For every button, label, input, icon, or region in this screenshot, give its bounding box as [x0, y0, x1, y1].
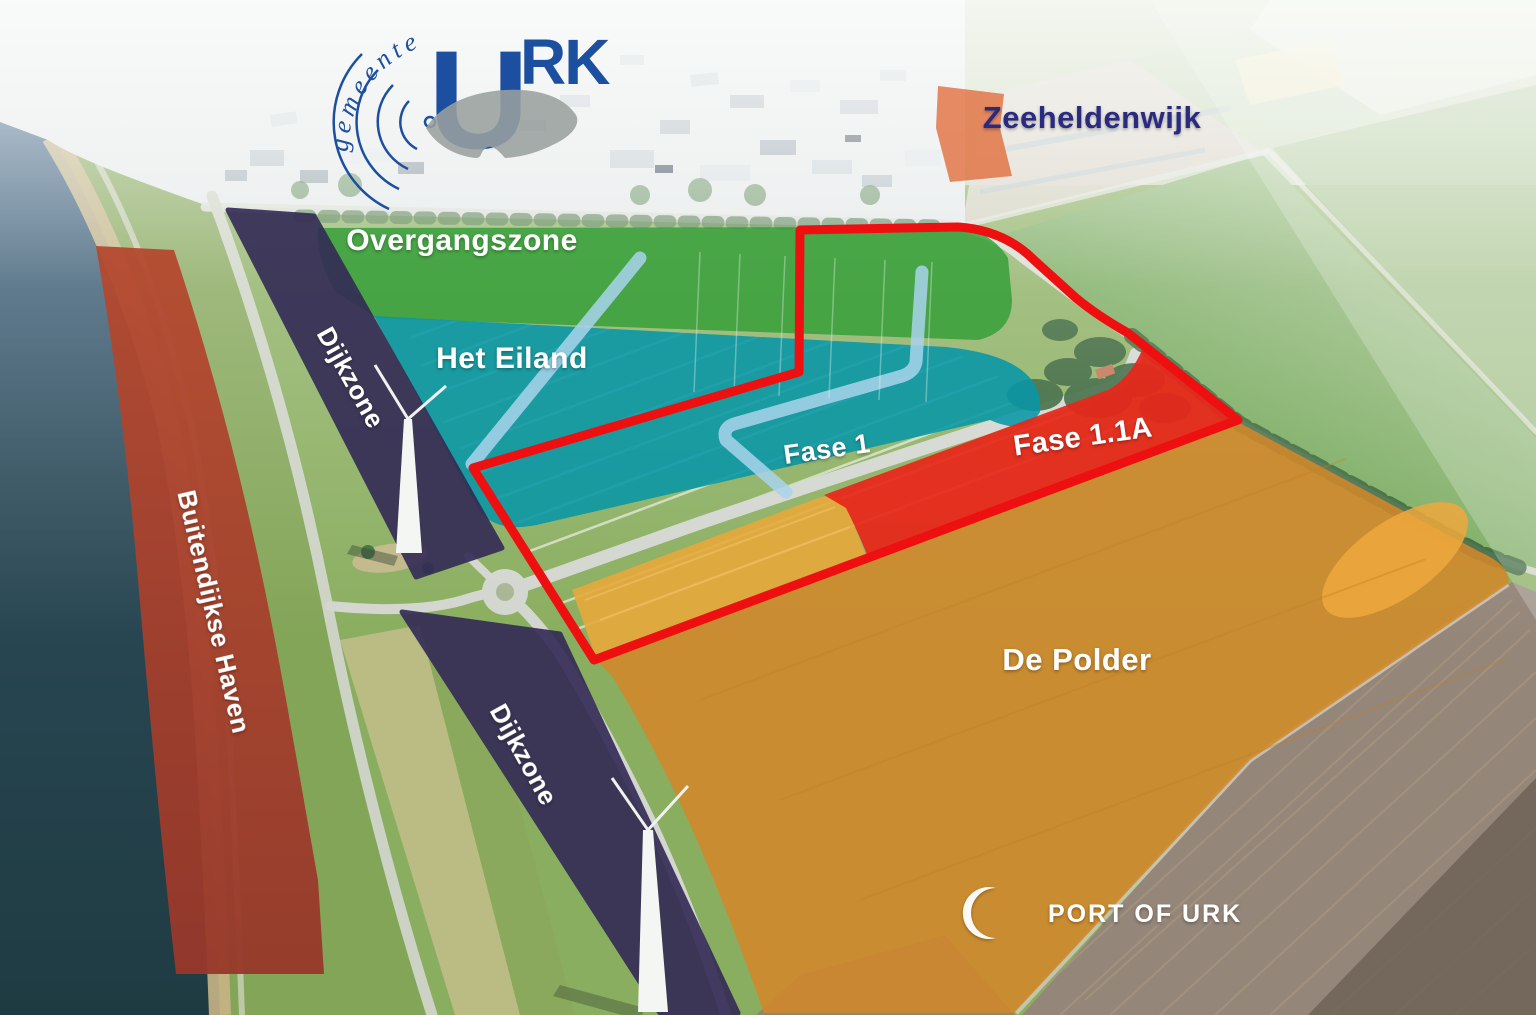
port-logo-text: PORT OF URK — [1048, 900, 1242, 928]
label-overgangszone: Overgangszone — [346, 224, 578, 257]
label-de-polder: De Polder — [1002, 642, 1151, 677]
label-het-eiland: Het Eiland — [436, 342, 588, 375]
urk-logo-rk: RK — [520, 26, 610, 98]
label-zeeheldenwijk: Zeeheldenwijk — [983, 100, 1202, 135]
aerial-map: Overgangszone Het Eiland Fase 1 Fase 1.1… — [0, 0, 1536, 1015]
